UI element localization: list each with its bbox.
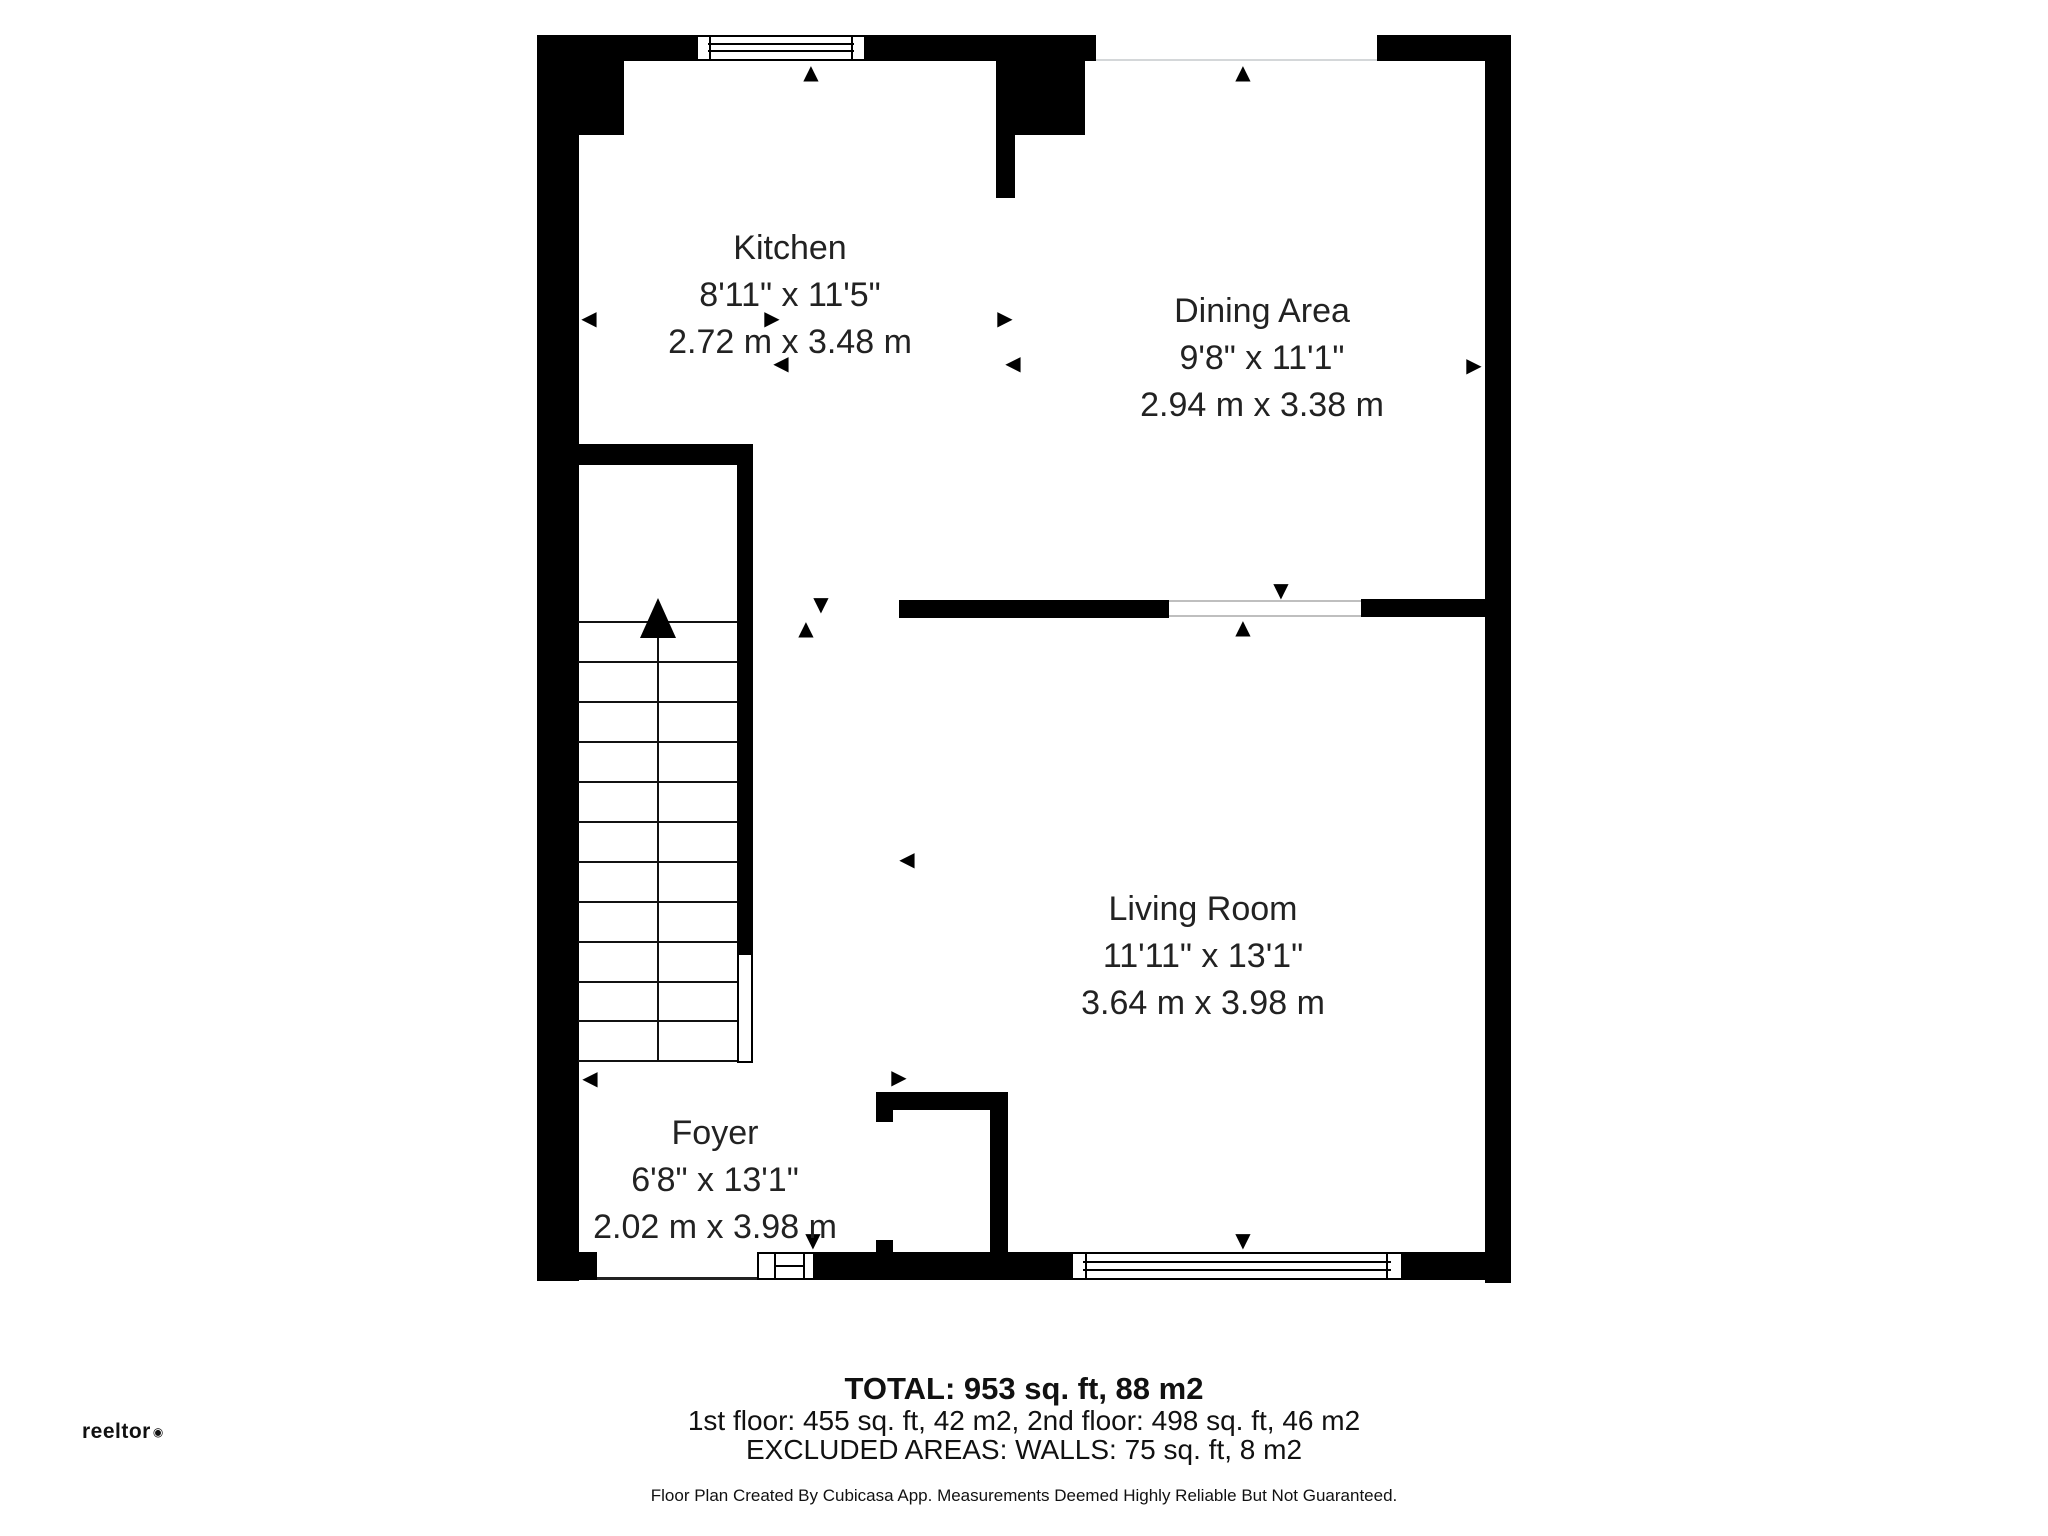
logo-text: reeltor (82, 1420, 151, 1443)
room-name: Foyer (593, 1110, 837, 1157)
wall-right (1485, 35, 1511, 1283)
door-swing-marker-icon: ▶ (891, 1067, 906, 1087)
room-dim-imperial: 11'11" x 13'1" (1081, 933, 1325, 980)
door-swing-marker-icon: ▼ (813, 594, 828, 614)
stairwell-right-wall (737, 465, 753, 953)
wall-dining-living-b (1361, 599, 1485, 617)
kitchen-window (696, 35, 866, 61)
door-swing-marker-icon: ▶ (1466, 355, 1481, 375)
wall-bottom-b (1403, 1252, 1511, 1280)
room-dim-imperial: 6'8" x 13'1" (593, 1157, 837, 1204)
room-dim-imperial: 8'11" x 11'5" (668, 272, 912, 319)
room-name: Dining Area (1140, 288, 1384, 335)
stair-up-arrow-icon (640, 598, 676, 638)
bottom-opening-line (597, 1277, 757, 1280)
door-opening-line-bottom (1169, 615, 1361, 617)
living-room-window (1071, 1252, 1403, 1280)
stairwell-top-wall (578, 444, 753, 465)
stair-center-line (657, 628, 659, 1061)
window-frame-line (1085, 1254, 1087, 1278)
room-label-kitchen: Kitchen 8'11" x 11'5" 2.72 m x 3.48 m (668, 225, 912, 366)
floor-areas-text: 1st floor: 455 sq. ft, 42 m2, 2nd floor:… (0, 1406, 2048, 1435)
room-name: Living Room (1081, 886, 1325, 933)
closet-top-wall (876, 1092, 1008, 1110)
front-door (757, 1252, 815, 1280)
logo-dot-icon: ◉ (153, 1425, 164, 1439)
door-swing-marker-icon: ◀ (1005, 353, 1020, 373)
room-dim-imperial: 9'8" x 11'1" (1140, 335, 1384, 382)
window-frame-line (1386, 1254, 1388, 1278)
closet-right-wall (990, 1110, 1008, 1252)
excluded-areas-text: EXCLUDED AREAS: WALLS: 75 sq. ft, 8 m2 (0, 1435, 2048, 1464)
door-swing-marker-icon: ▲ (1235, 62, 1250, 82)
door-swing-marker-icon: ▲ (1235, 617, 1250, 637)
reeltor-logo: reeltor◉ (82, 1420, 164, 1444)
room-label-living-room: Living Room 11'11" x 13'1" 3.64 m x 3.98… (1081, 886, 1325, 1027)
door-swing-marker-icon: ▶ (997, 308, 1012, 328)
room-label-dining-area: Dining Area 9'8" x 11'1" 2.94 m x 3.38 m (1140, 288, 1384, 429)
wall-dining-living-a (899, 600, 1169, 618)
door-swing-marker-icon: ▲ (798, 618, 813, 638)
wall-bottom-a (815, 1252, 1071, 1280)
door-opening-line-top (1169, 600, 1361, 602)
door-swing-marker-icon: ◀ (899, 849, 914, 869)
room-dim-metric: 2.02 m x 3.98 m (593, 1204, 837, 1251)
window-glass-line (1083, 1269, 1391, 1271)
window-glass-line (708, 50, 854, 52)
room-dim-metric: 3.64 m x 3.98 m (1081, 980, 1325, 1027)
room-name: Kitchen (668, 225, 912, 272)
door-swing-marker-icon: ◀ (582, 1068, 597, 1088)
wall-stub-kitchen-dining-narrow (996, 135, 1015, 198)
wall-left (537, 35, 579, 1281)
door-swing-marker-icon: ◀ (581, 308, 596, 328)
window-glass-line (1083, 1261, 1391, 1263)
wall-top-b (866, 35, 1096, 61)
door-swing-marker-icon: ▼ (1273, 580, 1288, 600)
floor-plan-page: ▲▲◀▶◀▶◀▶▼▲▼▲◀▶◀▼▼ Kitchen 8'11" x 11'5" … (0, 0, 2048, 1536)
stair-railing (737, 953, 753, 1063)
window-glass-line (708, 43, 854, 45)
window-frame-line (709, 37, 711, 59)
total-area-text: TOTAL: 953 sq. ft, 88 m2 (0, 1372, 2048, 1406)
door-mid-line (774, 1265, 805, 1267)
door-swing-marker-icon: ▼ (1235, 1230, 1250, 1250)
wall-top-a (537, 35, 696, 61)
disclaimer-text: Floor Plan Created By Cubicasa App. Meas… (0, 1486, 2048, 1506)
summary-footer: TOTAL: 953 sq. ft, 88 m2 1st floor: 455 … (0, 1372, 2048, 1506)
room-dim-metric: 2.72 m x 3.48 m (668, 319, 912, 366)
closet-left-wall-bottom (876, 1240, 893, 1252)
closet-left-wall-top (876, 1092, 893, 1122)
room-label-foyer: Foyer 6'8" x 13'1" 2.02 m x 3.98 m (593, 1110, 837, 1251)
wall-bottom-left-corner (537, 1252, 597, 1280)
room-dim-metric: 2.94 m x 3.38 m (1140, 382, 1384, 429)
window-frame-line (851, 37, 853, 59)
wall-stub-kitchen-dining-wide (996, 61, 1085, 135)
door-swing-marker-icon: ▲ (803, 62, 818, 82)
